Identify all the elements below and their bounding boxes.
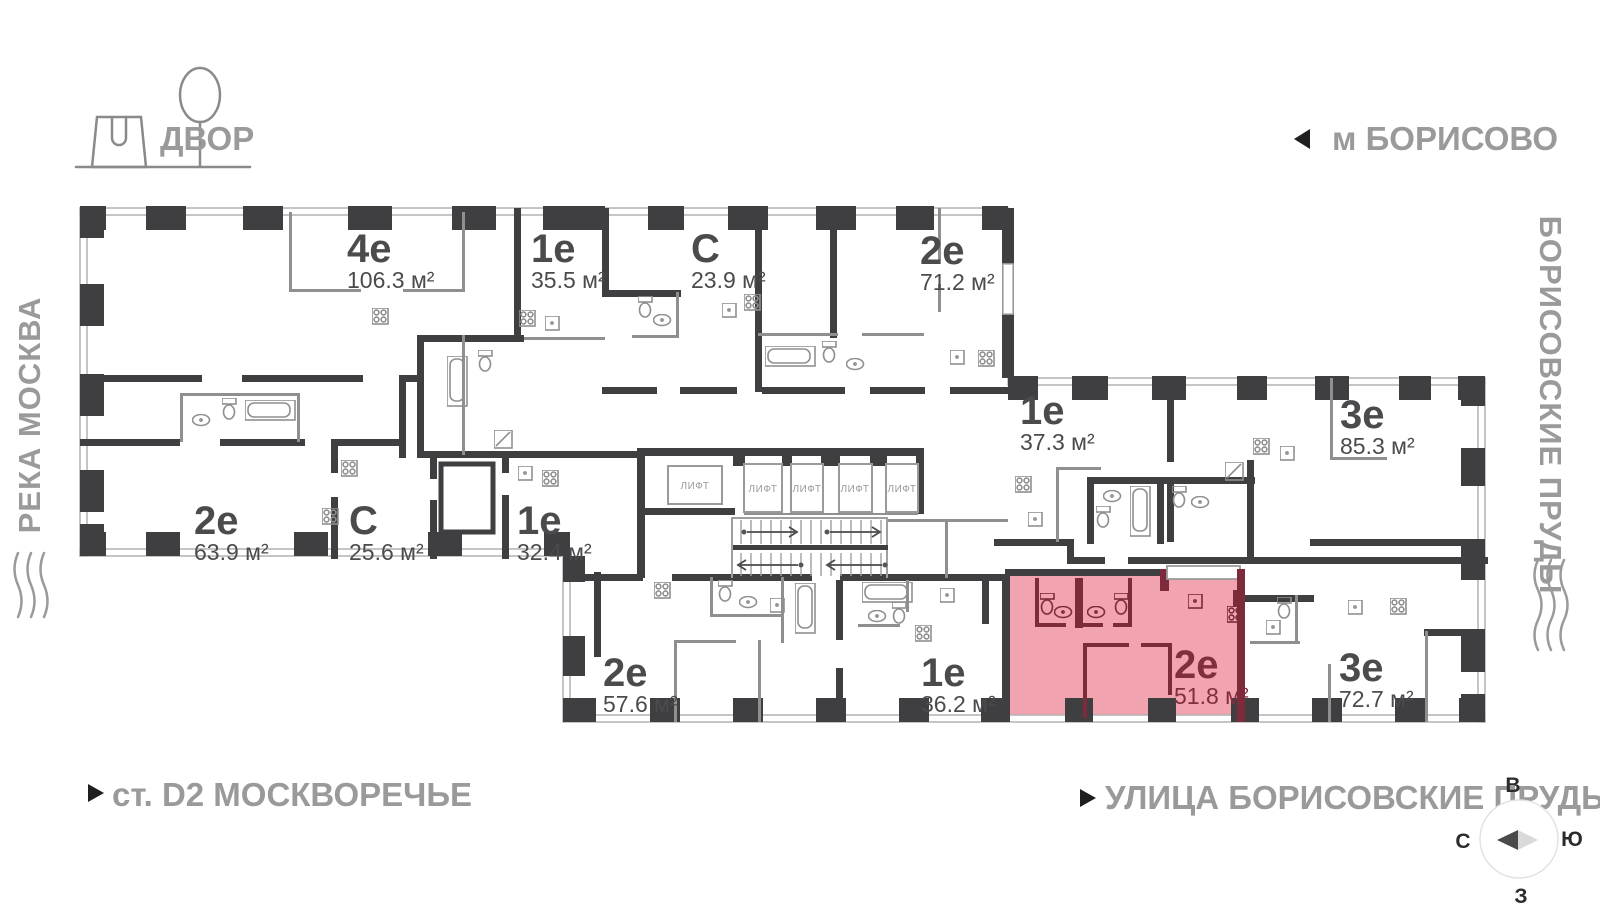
floor-plan-page: ДВОР м БОРИСОВО РЕКА МОСКВА БОРИСОВСКИЕ … [0, 0, 1600, 920]
shower-icon [494, 430, 512, 448]
elevator-label: ЛИФТ [681, 481, 710, 492]
compass-south: Ю [1561, 828, 1583, 851]
elevator-cabin: ЛИФТ [839, 464, 872, 512]
metro-label: м БОРИСОВО [1332, 120, 1558, 157]
selected-apartment-region[interactable] [1008, 576, 1238, 718]
bathtub-icon [245, 400, 295, 420]
elevator-cabin: ЛИФТ [744, 464, 782, 512]
river-waves-icon [15, 553, 48, 617]
compass-east: В [1505, 774, 1520, 797]
apartment-region-s-25[interactable] [337, 445, 430, 553]
floor-plan-svg: ДВОР м БОРИСОВО РЕКА МОСКВА БОРИСОВСКИЕ … [0, 0, 1600, 920]
station-direction-icon [88, 784, 104, 802]
metro-direction-icon [1294, 129, 1310, 149]
apartment-region-1e-36[interactable] [842, 580, 1002, 718]
river-marker: РЕКА МОСКВА [12, 297, 48, 617]
elevator-label: ЛИФТ [793, 484, 822, 495]
compass-north: С [1455, 830, 1470, 853]
apartment-region-2e-71[interactable] [833, 212, 1005, 387]
elevator-cabin: ЛИФТ [791, 464, 823, 512]
compass-west: З [1514, 885, 1527, 908]
courtyard-marker: ДВОР [76, 68, 254, 167]
apartment-region-2e-57[interactable] [573, 580, 836, 718]
elevator-cabin: ЛИФТ [886, 464, 918, 512]
river-label: РЕКА МОСКВА [12, 297, 47, 534]
elevator-core: ЛИФТ ЛИФТ ЛИФТ ЛИФТ ЛИФТ [668, 456, 924, 512]
apartment-region-2e-63[interactable] [85, 445, 330, 553]
bathtub-icon [765, 346, 815, 366]
elevator-cabin: ЛИФТ [668, 466, 722, 504]
floor-plan: ЛИФТ ЛИФТ ЛИФТ ЛИФТ ЛИФТ [80, 206, 1488, 722]
courtyard-label: ДВОР [160, 120, 254, 157]
apartment-region-1e-37[interactable] [1010, 381, 1167, 539]
ponds-marker: БОРИСОВСКИЕ ПРУДЫ [1533, 216, 1568, 650]
elevator-label: ЛИФТ [841, 484, 870, 495]
apartment-region-3e-72[interactable] [1243, 563, 1482, 718]
elevator-label: ЛИФТ [888, 484, 917, 495]
toilet-icon [222, 398, 236, 419]
station-marker: ст. D2 МОСКВОРЕЧЬЕ [88, 776, 472, 813]
street-direction-icon [1080, 789, 1096, 807]
apartment-region-3e-85[interactable] [1173, 381, 1482, 539]
apartment-region-1e-35[interactable] [517, 212, 605, 337]
stairs [731, 517, 888, 578]
sink-icon [193, 415, 210, 426]
apartment-region-s-23[interactable] [605, 212, 758, 387]
metro-marker: м БОРИСОВО [1294, 120, 1558, 157]
elevator-label: ЛИФТ [749, 484, 778, 495]
apartment-region-1e-32[interactable] [508, 458, 593, 553]
ponds-label: БОРИСОВСКИЕ ПРУДЫ [1533, 216, 1568, 595]
station-label: ст. D2 МОСКВОРЕЧЬЕ [112, 776, 472, 813]
apartment-region-4e-106[interactable] [85, 212, 515, 377]
